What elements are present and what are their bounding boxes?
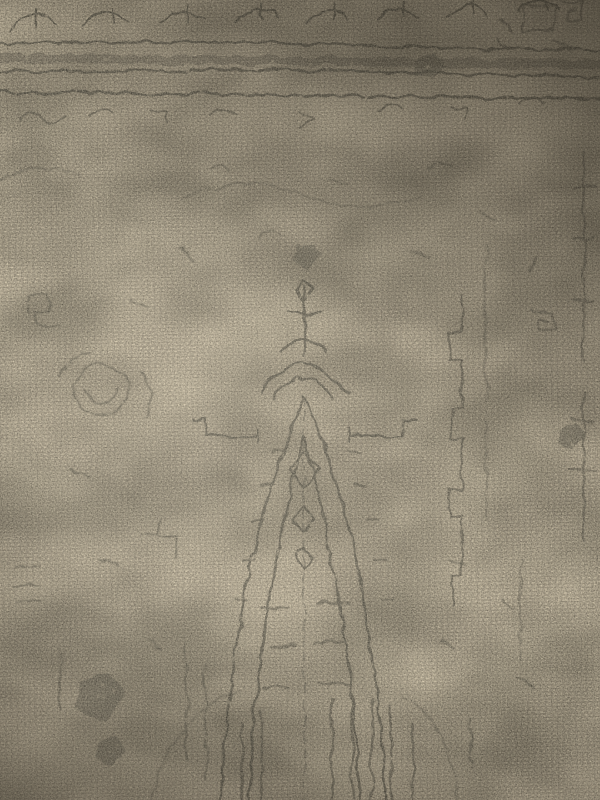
rug-photo: Faded gray-on-beige vintage oriental rug… bbox=[0, 0, 600, 800]
shadow-bottom-edge bbox=[0, 0, 600, 800]
rug-photo-frame: Faded gray-on-beige vintage oriental rug… bbox=[0, 0, 600, 800]
